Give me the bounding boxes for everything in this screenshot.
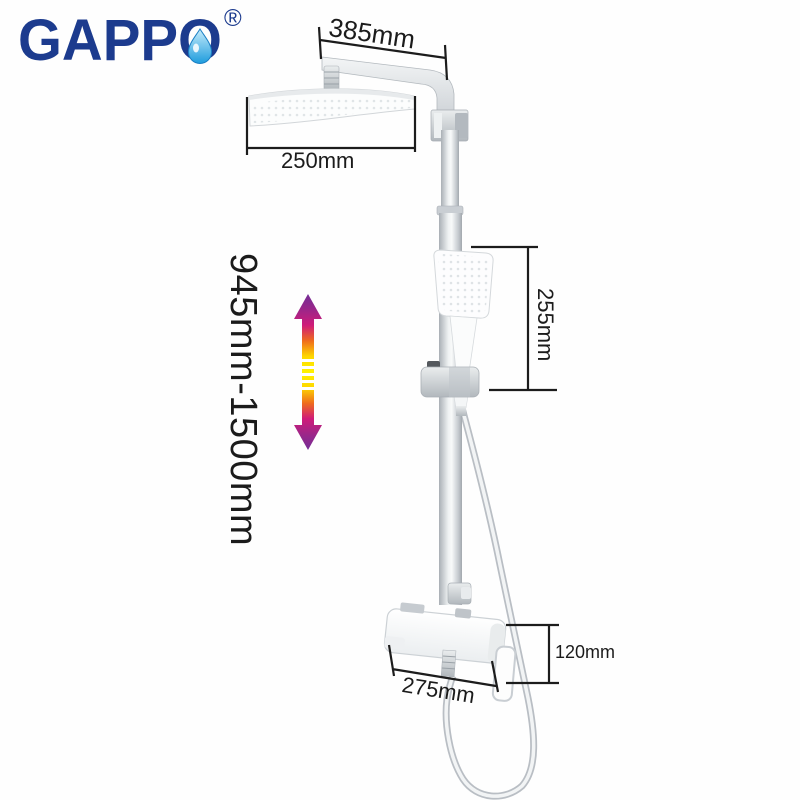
dimension-label-head-width: 250mm: [281, 149, 354, 172]
rain-shower-head: [249, 89, 415, 126]
product-photo: GAPPO ®: [0, 0, 800, 800]
wall-plate: [492, 646, 516, 701]
height-range-arrow-icon: [294, 294, 322, 450]
dimension-label-column-height-range: 945mm-1500mm: [222, 253, 262, 546]
head-connector-nut: [324, 66, 339, 90]
dimension-label-mixer-height: 120mm: [555, 643, 615, 662]
shower-system-illustration: [0, 0, 800, 800]
dimension-label-hand-shower-height: 255mm: [534, 288, 557, 361]
